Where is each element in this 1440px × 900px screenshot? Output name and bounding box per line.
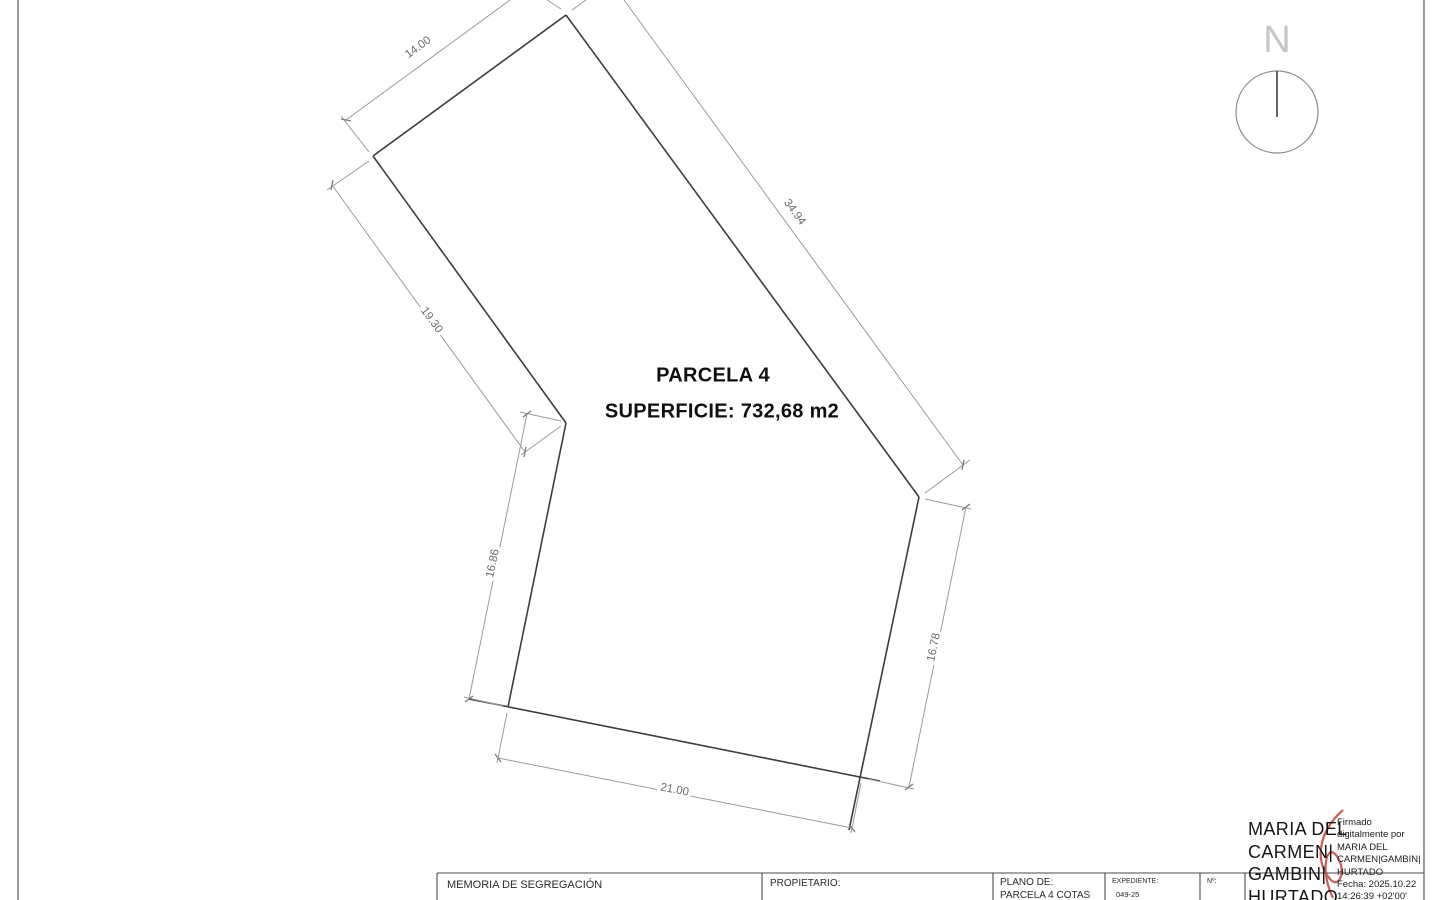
- cadastral-plan-svg: 14.00 34.94 19.30 16.86 16.78 21.00 N: [0, 0, 1440, 900]
- north-label: N: [1263, 19, 1290, 61]
- file-number-label: EXPEDIENTE:: [1112, 878, 1158, 885]
- drawing-sheet: 14.00 34.94 19.30 16.86 16.78 21.00 N PA…: [0, 0, 1440, 900]
- dimension-ticks: [331, 119, 970, 832]
- parcel-title: PARCELA 4: [656, 365, 770, 388]
- dimension-label-upper-left: 19.30: [418, 305, 445, 335]
- dimension-label-lower-left: 16.86: [484, 548, 502, 579]
- sheet-number-label: Nº:: [1207, 878, 1217, 885]
- dimension-label-top-left: 14.00: [403, 34, 433, 61]
- plan-label: PLANO DE:: [1000, 877, 1053, 888]
- signature-details: Firmado digitalmente por MARIA DEL CARME…: [1337, 817, 1421, 900]
- plan-value: PARCELA 4 COTAS: [1000, 890, 1090, 900]
- dimension-label-right: 34.94: [781, 197, 808, 228]
- dimension-label-bottom: 21.00: [659, 781, 690, 798]
- document-title: MEMORIA DE SEGREGACIÓN: [447, 879, 602, 891]
- sheet-frame: [18, 0, 1424, 900]
- file-number-value: 049-25: [1116, 890, 1139, 899]
- dimension-label-lower-right: 16.78: [925, 632, 943, 663]
- parcel-area-label: SUPERFICIE: 732,68 m2: [605, 401, 839, 424]
- north-compass-icon: N: [1236, 19, 1318, 153]
- signature-name: MARIA DEL CARMEN| GAMBIN| HURTADO: [1248, 818, 1348, 900]
- owner-label: PROPIETARIO:: [770, 878, 840, 889]
